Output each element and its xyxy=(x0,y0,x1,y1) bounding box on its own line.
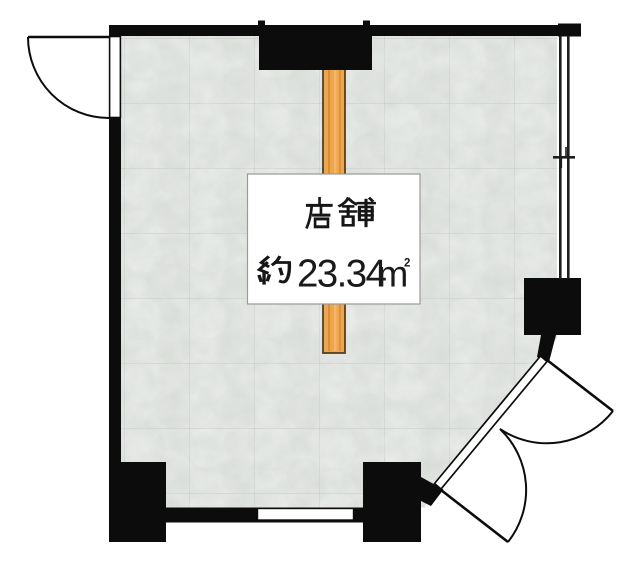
svg-text:2: 2 xyxy=(404,258,410,270)
svg-text:23.34: 23.34 xyxy=(297,252,387,295)
